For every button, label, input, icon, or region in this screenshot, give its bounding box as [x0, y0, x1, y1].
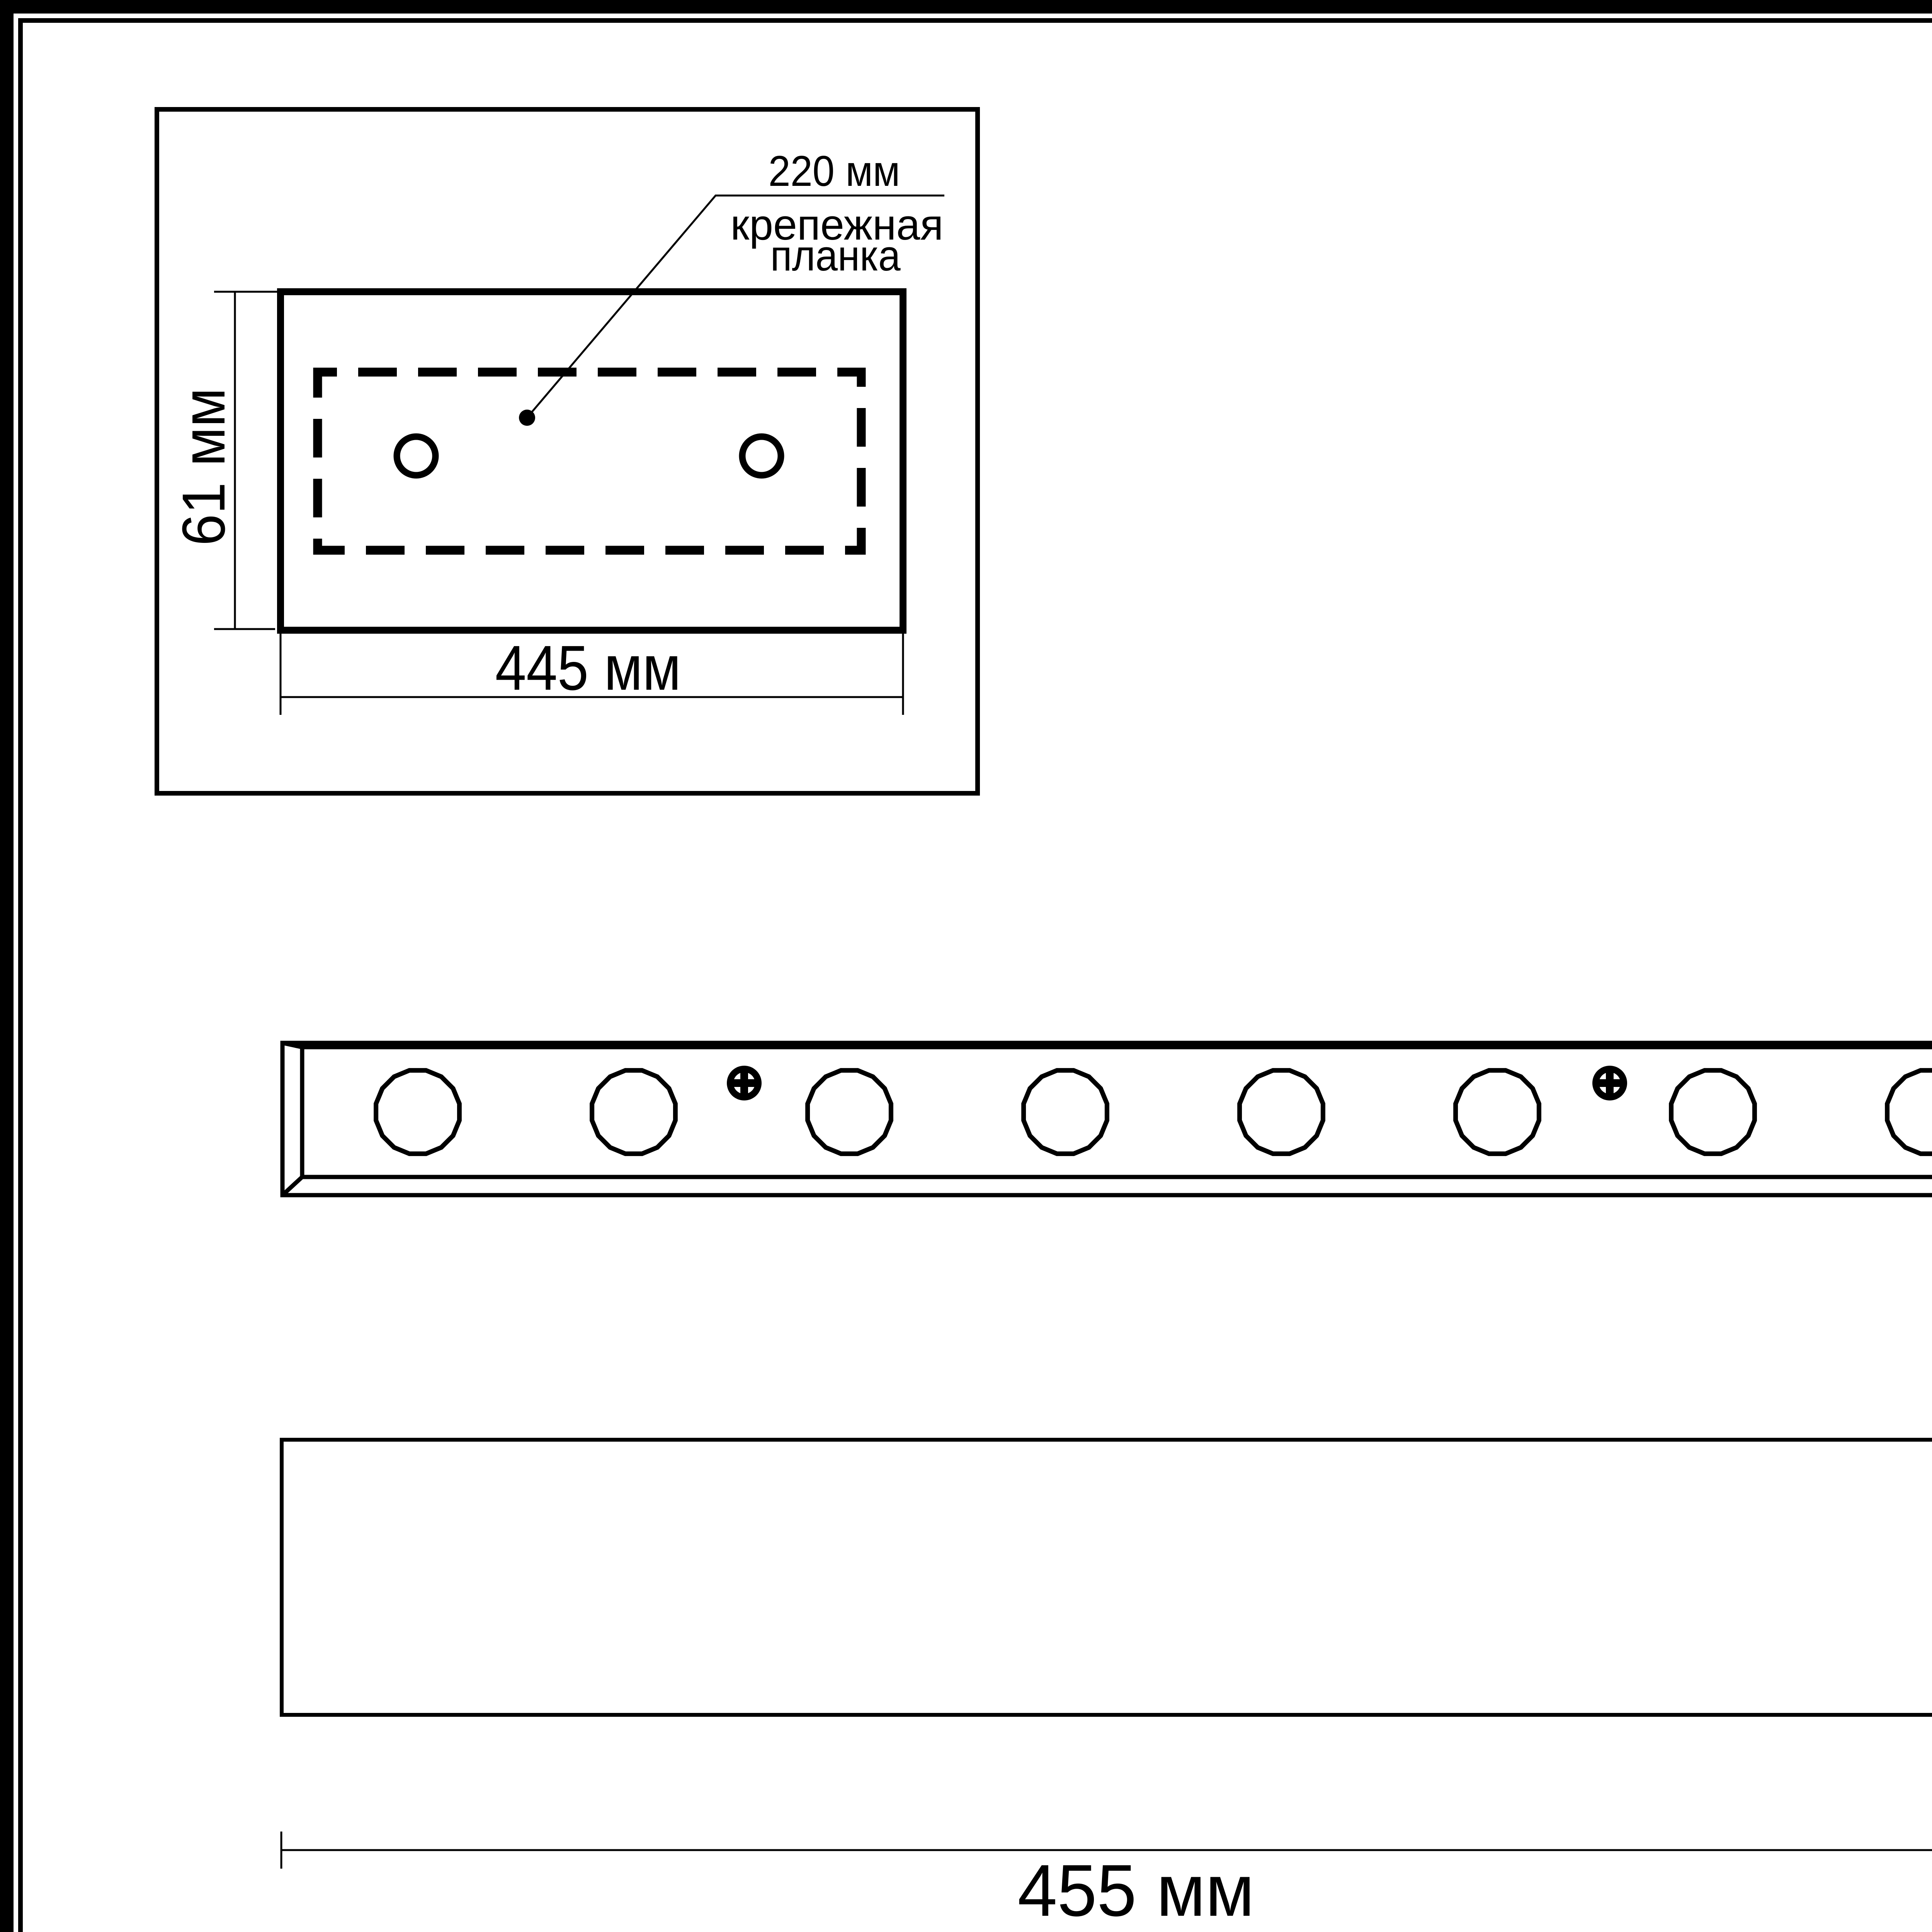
- svg-text:планка: планка: [770, 231, 901, 280]
- svg-text:220 мм: 220 мм: [769, 147, 900, 195]
- svg-text:61 мм: 61 мм: [170, 388, 238, 546]
- svg-text:445 мм: 445 мм: [495, 633, 681, 703]
- svg-text:455 мм: 455 мм: [1018, 1850, 1255, 1932]
